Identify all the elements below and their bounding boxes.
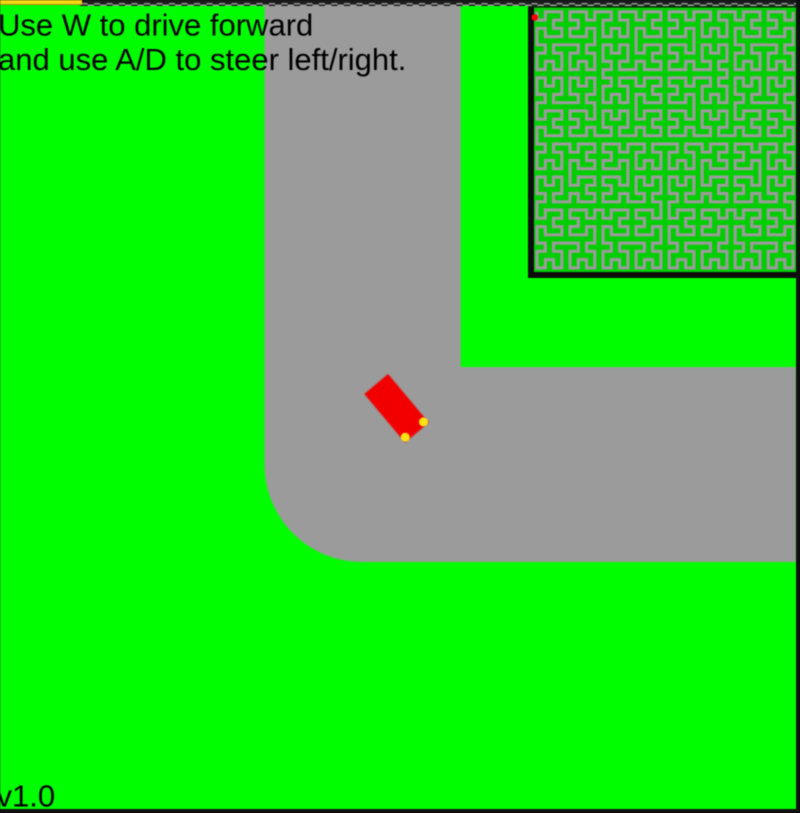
svg-text:and use A/D to steer left/righ: and use A/D to steer left/right. — [0, 42, 406, 77]
svg-text:v1.0: v1.0 — [0, 779, 55, 813]
svg-text:Use W to drive forward: Use W to drive forward — [0, 7, 313, 42]
